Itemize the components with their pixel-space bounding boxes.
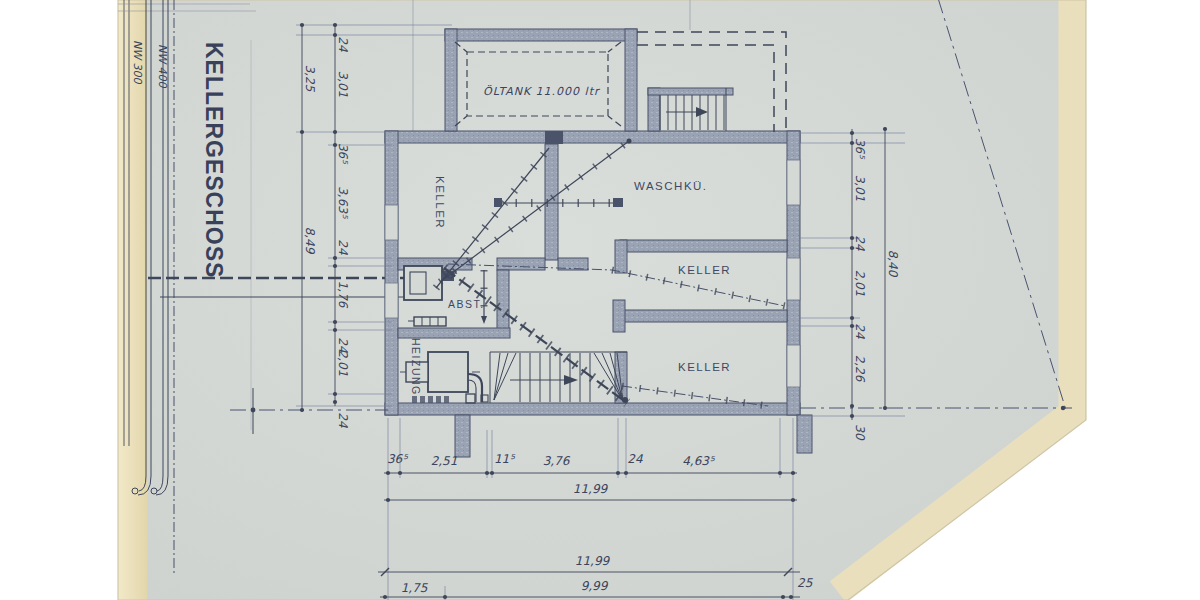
dim-right-inner-4: 24 xyxy=(853,323,867,339)
room-label-heizung: HEIZUNG xyxy=(410,338,422,396)
room-label-keller-mitte: KELLER xyxy=(678,264,731,276)
room-label-keller-west: KELLER xyxy=(434,176,446,229)
dim-right-inner-6: 30 xyxy=(853,424,867,441)
dim-right-inner-1: 3,01 xyxy=(853,175,867,202)
dim-right-outer-0: 8,40 xyxy=(886,250,900,278)
drawing-title: KELLERGESCHOSS xyxy=(201,42,227,278)
dim-left-inner-3: 3,63⁵ xyxy=(336,186,350,220)
dim-left-inner-0: 24 xyxy=(336,36,350,52)
dim-bottom-total: 11,99 xyxy=(573,482,609,496)
dim-left-outer-0: 3,25 xyxy=(303,65,317,93)
pipe-label-nw400: NW 400 xyxy=(156,44,169,89)
dim-left-inner-2: 36⁵ xyxy=(336,143,350,165)
dim-bottom-0: 36⁵ xyxy=(387,452,409,466)
dim-left-outer-1: 8,49 xyxy=(303,227,317,255)
dim-site-total: 11,99 xyxy=(575,554,611,568)
paper-sheet xyxy=(118,0,1086,600)
dim-left-inner-1: 3,01 xyxy=(336,71,350,98)
dim-site-2: 25 xyxy=(797,576,814,590)
room-label-abstellraum: ABST. xyxy=(448,298,485,310)
dim-left-inner-8: 24 xyxy=(336,412,350,428)
scanned-floor-plan: KELLERGESCHOSS NW 300 NW 400 xyxy=(0,0,1200,600)
dim-left-inner-5: 1,76 xyxy=(336,281,350,309)
dim-bottom-4: 24 xyxy=(627,452,643,466)
room-label-keller-sued: KELLER xyxy=(678,361,731,373)
dim-right-inner-2: 24 xyxy=(853,235,867,251)
dim-site-0: 1,75 xyxy=(401,581,429,595)
pipe-label-nw300: NW 300 xyxy=(131,40,144,85)
dim-right-inner-5: 2,26 xyxy=(853,355,867,383)
dim-bottom-3: 3,76 xyxy=(543,454,571,468)
floor-plan-drawing: KELLERGESCHOSS NW 300 NW 400 xyxy=(0,0,1200,600)
dim-bottom-5: 4,63⁵ xyxy=(682,454,716,468)
dim-right-inner-3: 2,01 xyxy=(853,270,867,297)
dim-right-inner-0: 36⁵ xyxy=(853,138,867,160)
dim-bottom-1: 2,51 xyxy=(431,454,458,468)
room-label-waschkueche: WASCHKÜ. xyxy=(634,180,708,192)
dim-site-1: 9,99 xyxy=(581,579,609,593)
dim-left-inner-7: 2,01 xyxy=(336,350,350,377)
dim-left-inner-4: 24 xyxy=(336,239,350,255)
dim-bottom-2: 11⁵ xyxy=(494,452,516,466)
room-label-oeltank: ÖLTANK 11.000 ltr xyxy=(483,84,601,98)
